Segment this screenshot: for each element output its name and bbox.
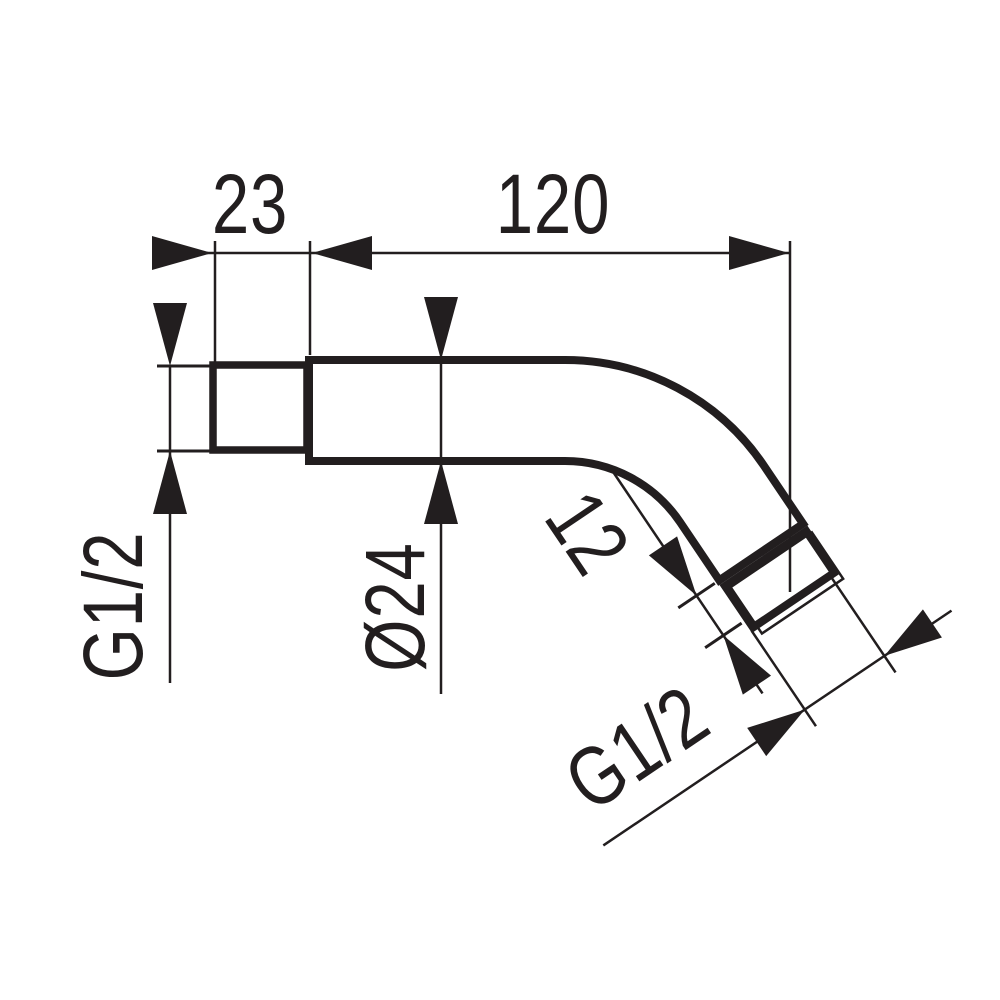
arrowhead-120-right-icon — [729, 236, 789, 270]
arrowhead-outlet-thread-upper-icon — [875, 609, 942, 670]
arrowhead-23-left-icon — [152, 236, 212, 270]
arrowhead-wall-thread-down-icon — [153, 303, 187, 366]
arrowhead-diameter-down-icon — [424, 297, 458, 360]
thread-label-outlet: G1/2 — [549, 668, 725, 829]
thread-label-wall: G1/2 — [67, 532, 161, 681]
diameter-label: Ø24 — [349, 542, 443, 671]
arrowhead-outlet-thread-lower-icon — [747, 695, 814, 756]
wall-connector-outline — [213, 365, 307, 450]
dimension-label-12: 12 — [527, 475, 648, 591]
dimension-label-23: 23 — [212, 158, 288, 252]
arrowhead-outlet-length-back-icon — [709, 626, 771, 695]
extension-line-outlet-upper — [831, 577, 895, 672]
outlet-end-group: G1/2 12 — [432, 357, 963, 862]
arrowhead-wall-thread-up-icon — [153, 451, 187, 514]
drawing-canvas: 23 120 G1/2 Ø24 G1/2 — [0, 0, 1000, 1000]
outlet-nut-outline — [725, 531, 834, 627]
shower-arm-technical-drawing: 23 120 G1/2 Ø24 G1/2 — [0, 0, 1000, 1000]
arrowhead-23-right-icon — [312, 236, 372, 270]
arrowhead-diameter-up-icon — [424, 461, 458, 524]
dimension-label-120: 120 — [496, 158, 611, 252]
